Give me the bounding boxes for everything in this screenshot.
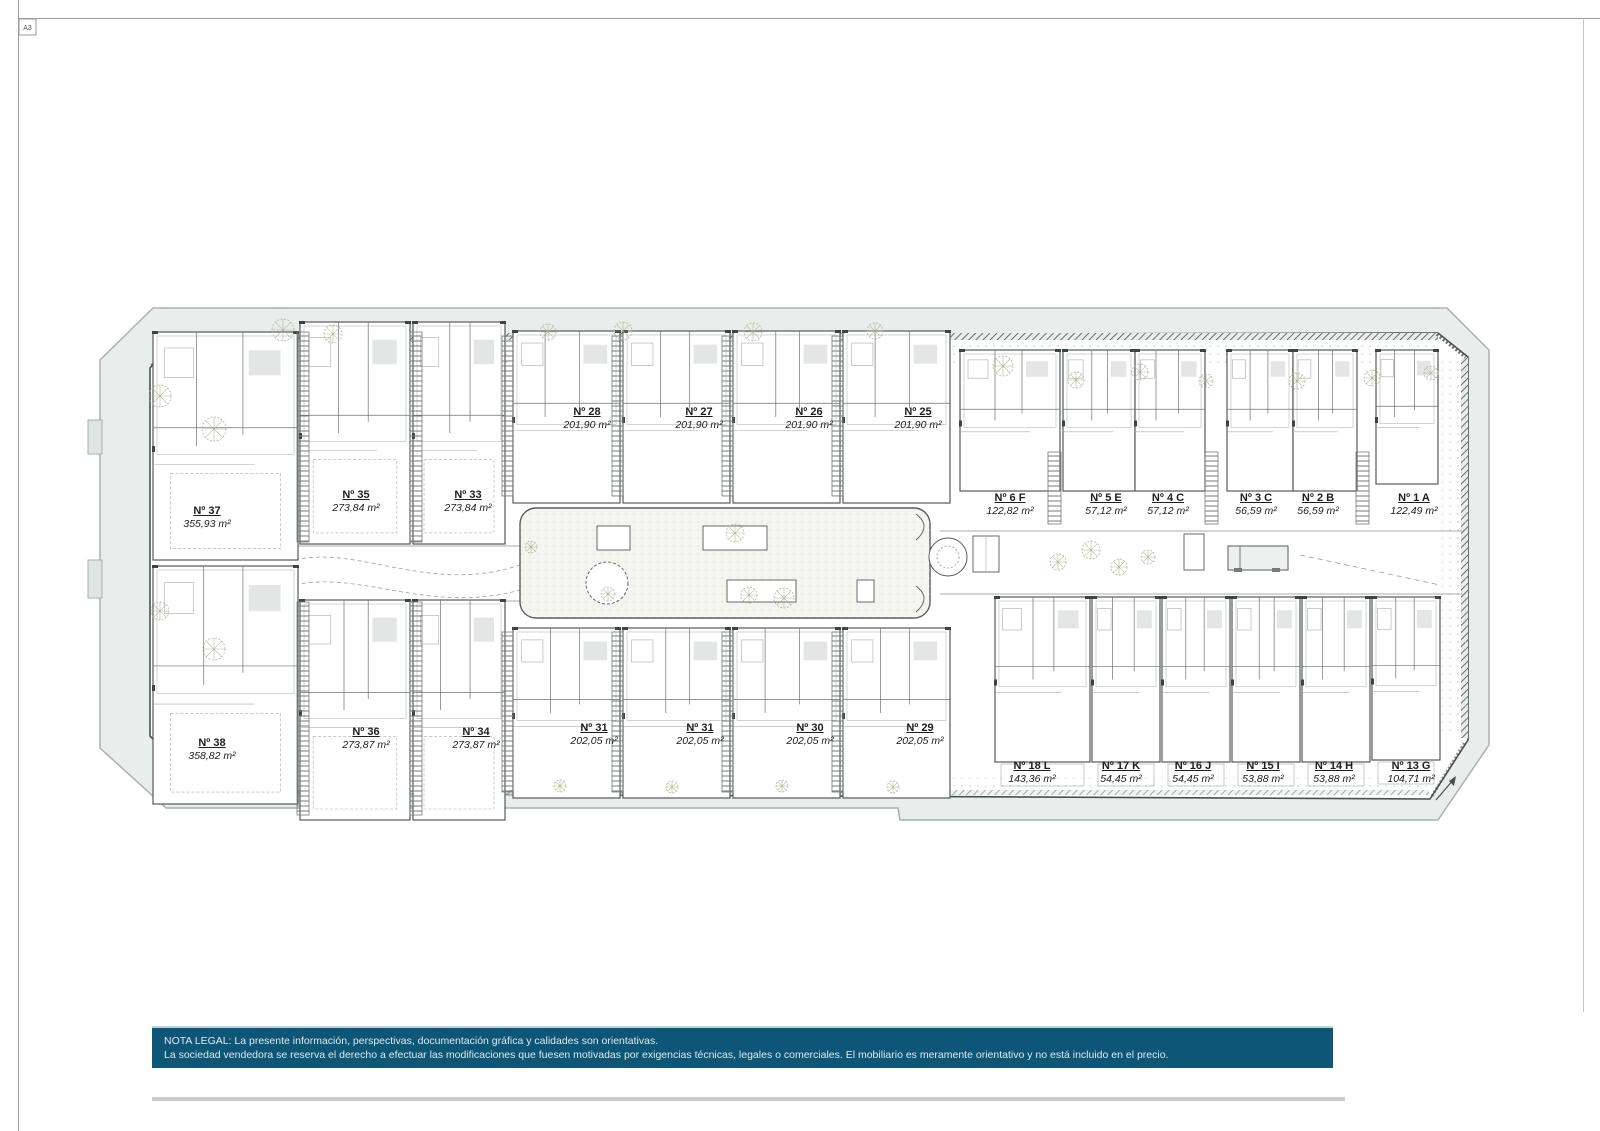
footer-divider bbox=[152, 1097, 1345, 1101]
plan-artwork bbox=[88, 308, 1489, 820]
sheet-format-label: A3 bbox=[23, 25, 32, 32]
sheet-page: A3 bbox=[0, 0, 1600, 1131]
legal-note-banner: NOTA LEGAL: La presente información, per… bbox=[152, 1026, 1333, 1068]
site-plan-drawing: A3 bbox=[0, 0, 1600, 1131]
legal-line-1: NOTA LEGAL: La presente información, per… bbox=[164, 1034, 1319, 1048]
legal-line-2: La sociedad vendedora se reserva el dere… bbox=[164, 1048, 1319, 1062]
